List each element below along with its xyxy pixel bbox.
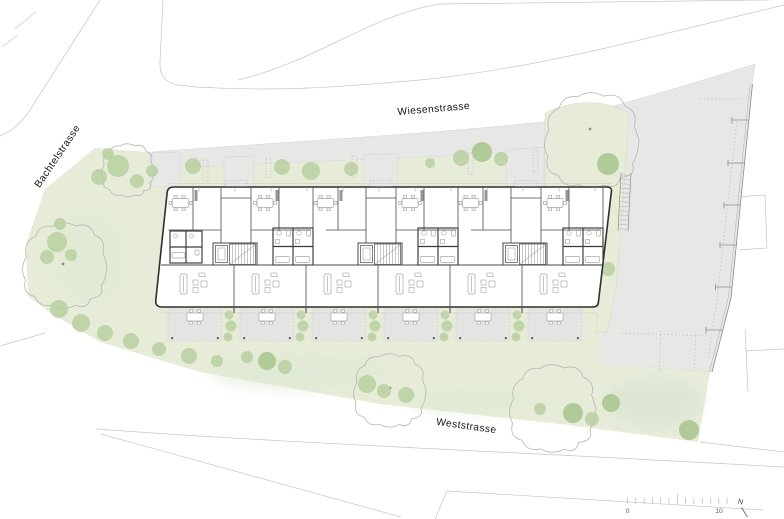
street-label-weststrasse: Weststrasse	[435, 417, 497, 436]
site-plan-svg: Bachtelstrasse Wiesenstrasse Weststrasse…	[0, 0, 784, 519]
scale-end-label: 10	[715, 508, 723, 515]
street-label-wiesenstrasse: Wiesenstrasse	[397, 101, 470, 118]
apartment-building	[156, 181, 612, 314]
north-arrow-label: N	[737, 497, 744, 507]
site-plan: Bachtelstrasse Wiesenstrasse Weststrasse…	[0, 0, 784, 519]
terraces	[168, 309, 582, 342]
scale-start-label: 0	[626, 508, 630, 515]
north-arrow: N	[737, 497, 748, 517]
bachtelstrasse-west-edge	[0, 0, 100, 136]
